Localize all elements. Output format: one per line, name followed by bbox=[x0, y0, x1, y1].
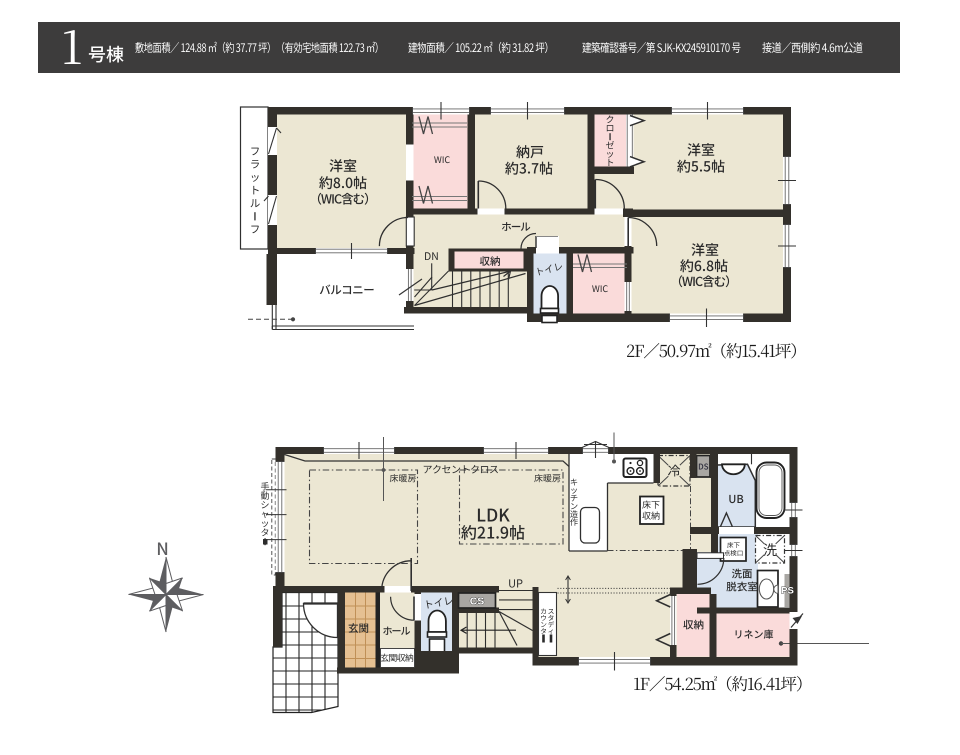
svg-text:PS: PS bbox=[781, 586, 794, 597]
svg-text:CS: CS bbox=[470, 596, 485, 608]
